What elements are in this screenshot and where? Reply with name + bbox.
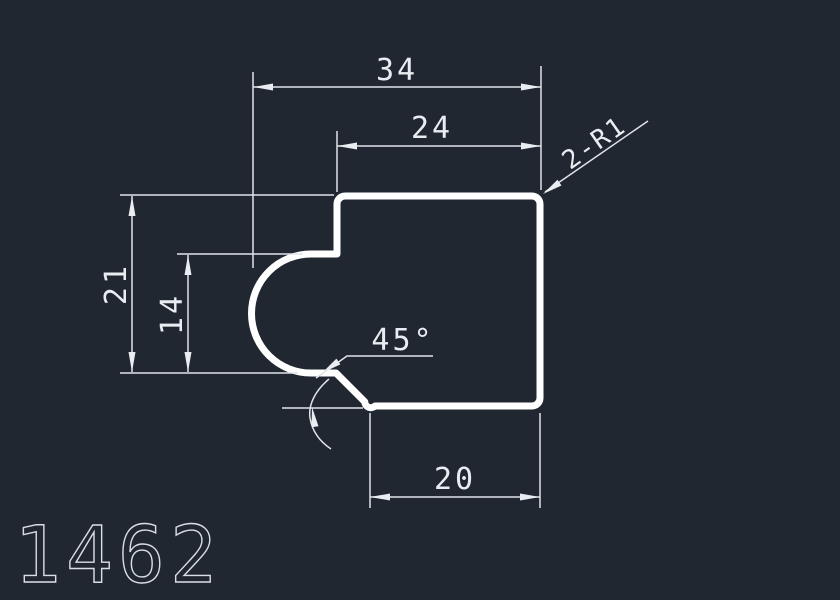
arrowhead	[337, 143, 357, 150]
dim-top-width: 24	[337, 111, 541, 192]
cad-drawing-viewport: 34 24 21 14	[0, 0, 840, 600]
arrowhead	[521, 84, 541, 91]
dim-chamfer-angle: 45°	[282, 323, 435, 449]
arrowhead	[185, 352, 192, 372]
dim-bottom-width-value: 20	[434, 462, 476, 497]
cad-canvas: 34 24 21 14	[0, 0, 840, 600]
arrowhead	[253, 84, 273, 91]
dim-total-height: 21	[99, 195, 334, 373]
dim-pocket-height-value: 14	[155, 293, 190, 335]
part-outline	[252, 196, 541, 408]
dim-total-width: 34	[253, 53, 541, 268]
arrowhead	[312, 407, 319, 427]
arrowhead	[129, 352, 136, 372]
arrowhead	[370, 494, 390, 501]
dim-chamfer-angle-value: 45°	[371, 323, 434, 358]
dim-bottom-width: 20	[370, 413, 540, 508]
part-number: 1462	[14, 511, 222, 600]
dim-top-width-value: 24	[411, 111, 453, 146]
arrowhead	[185, 255, 192, 275]
arrowhead	[520, 494, 540, 501]
dim-total-height-value: 21	[99, 263, 134, 305]
arrowhead	[521, 143, 541, 150]
arrowhead	[129, 196, 136, 216]
dim-pocket-height: 14	[155, 254, 303, 372]
arrowhead	[543, 180, 562, 194]
leader-fillet-note: 2-R1	[543, 111, 648, 194]
fillet-note-value: 2-R1	[557, 111, 632, 176]
dim-total-width-value: 34	[376, 53, 418, 88]
profile-path	[252, 196, 541, 408]
